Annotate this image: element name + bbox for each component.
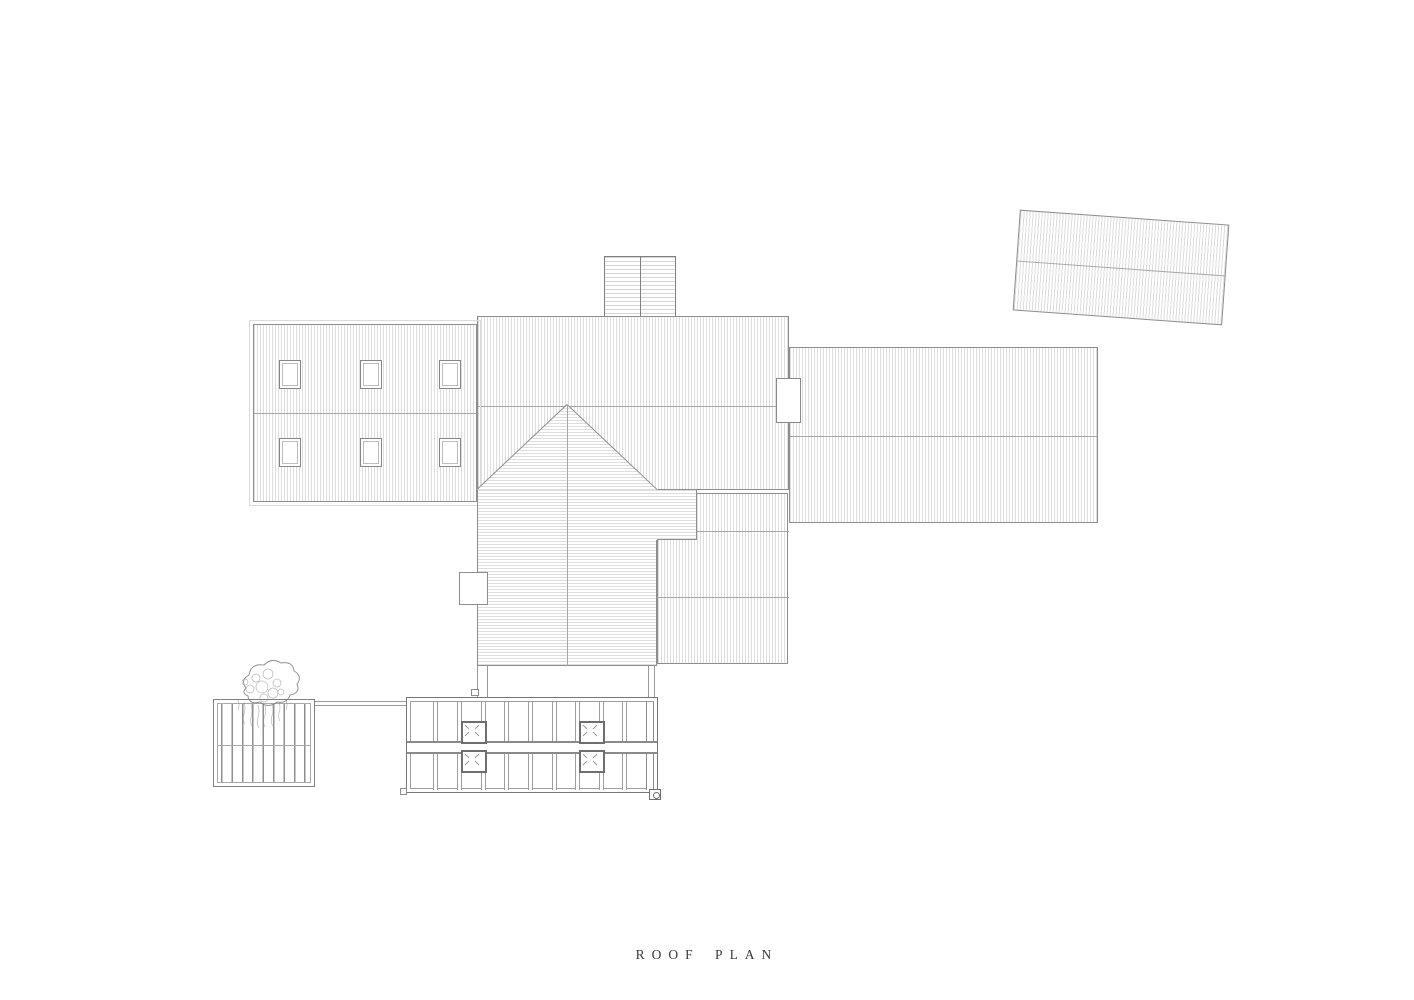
right-wing-ridge-line	[790, 436, 1097, 437]
roof-panel-line	[657, 597, 789, 598]
drain-outlet-icon	[653, 792, 660, 799]
roof-vent	[579, 721, 605, 744]
lower-right-roof-lower	[657, 540, 788, 664]
chimney-divider-line	[640, 257, 641, 316]
tree-icon	[218, 652, 310, 736]
roof-vent	[461, 721, 487, 744]
roof-vent	[461, 750, 487, 773]
roof-drain	[649, 789, 661, 800]
link-wall-right	[648, 666, 655, 697]
chimney	[604, 256, 676, 317]
right-wing-roof	[789, 347, 1098, 523]
gable-edge-line	[656, 540, 657, 666]
left-wing-ridge-line	[254, 413, 476, 414]
glazed-center-gutter	[407, 741, 657, 754]
lower-right-roof-upper	[697, 493, 788, 540]
central-ridge-line	[478, 406, 788, 407]
roof-vent	[579, 750, 605, 773]
skylight	[279, 360, 301, 389]
left-wing-roof	[253, 324, 477, 502]
walkway-beam	[315, 701, 406, 706]
roof-panel-line	[697, 531, 789, 532]
detached-outbuilding-roof	[1013, 210, 1230, 326]
junction-box	[471, 689, 479, 696]
skylight	[439, 360, 461, 389]
skylight	[360, 360, 382, 389]
pergola-mid-beam	[217, 745, 311, 746]
skylight	[279, 438, 301, 467]
glazed-roof	[406, 697, 658, 793]
roof-plan-drawing: ROOF PLAN	[0, 0, 1414, 1000]
skylight	[439, 438, 461, 467]
glazed-corner-detail	[400, 788, 407, 795]
gable-ridge-line	[567, 405, 568, 666]
skylight	[360, 438, 382, 467]
drawing-title: ROOF PLAN	[0, 947, 1414, 963]
gable-roof-step	[657, 490, 697, 540]
roof-access-hatch	[459, 572, 488, 605]
small-chimney	[776, 378, 801, 423]
outbuilding-ridge-line	[1017, 261, 1225, 277]
